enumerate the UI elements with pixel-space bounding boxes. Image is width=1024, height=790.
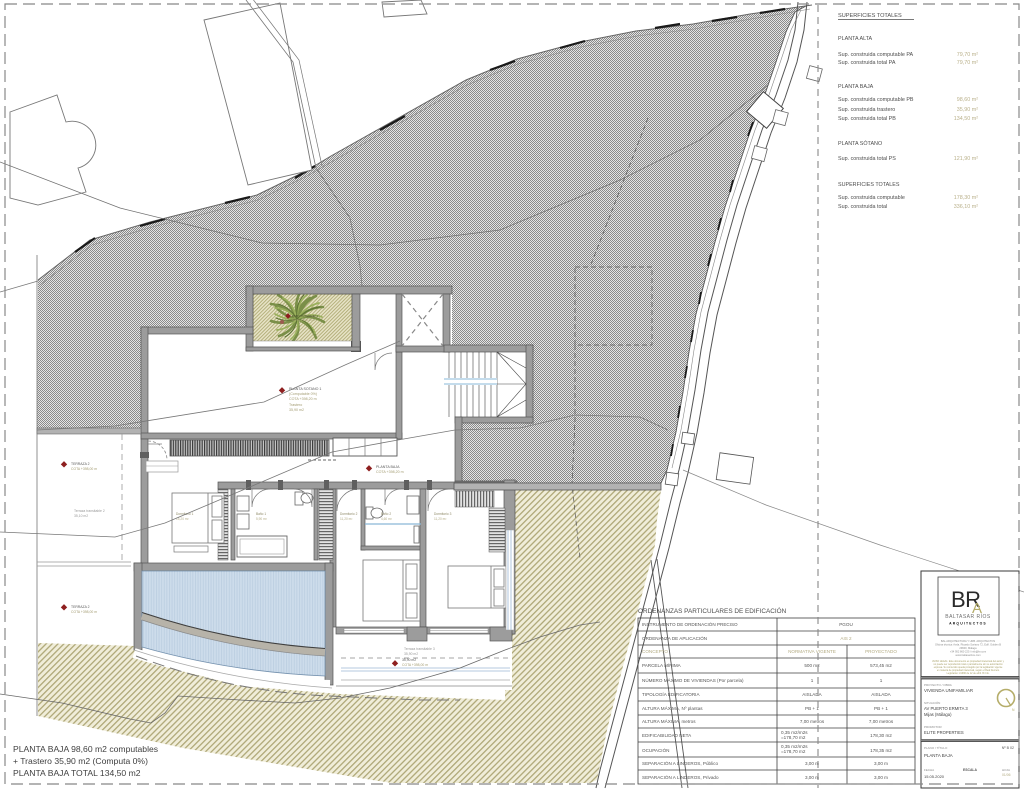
svg-text:Mijas (Málaga): Mijas (Málaga) <box>924 712 952 717</box>
svg-text:Sup. construida total PS: Sup. construida total PS <box>838 156 896 162</box>
svg-text:TERRAZA 2: TERRAZA 2 <box>71 462 90 466</box>
svg-text:35,90 m2: 35,90 m2 <box>404 652 418 656</box>
svg-text:3,00 m: 3,00 m <box>805 761 819 766</box>
svg-text:CONCEPTO: CONCEPTO <box>642 649 668 654</box>
svg-text:3,00 m: 3,00 m <box>874 761 888 766</box>
svg-text:TERRAZA 2: TERRAZA 2 <box>71 605 90 609</box>
svg-text:35,90 m2: 35,90 m2 <box>289 408 304 412</box>
svg-text:7,00 metros: 7,00 metros <box>800 719 825 724</box>
svg-text:Terraza transitable 2: Terraza transitable 2 <box>74 509 105 513</box>
svg-text:AISLADA: AISLADA <box>802 692 822 697</box>
svg-text:PROYECTADO: PROYECTADO <box>865 649 897 654</box>
svg-text:ESCALA: ESCALA <box>963 768 977 772</box>
svg-text:336,10 m²: 336,10 m² <box>954 204 978 210</box>
svg-text:3,00 m: 3,00 m <box>805 775 819 780</box>
svg-text:Terraza transitable 3: Terraza transitable 3 <box>404 647 435 651</box>
svg-text:15.05.2020: 15.05.2020 <box>924 774 945 779</box>
svg-text:98,60 m²: 98,60 m² <box>957 97 978 103</box>
svg-text:35,90 m²: 35,90 m² <box>957 107 978 113</box>
svg-text:11,20 m²: 11,20 m² <box>434 517 446 521</box>
svg-text:TIPOLOGÍA EDIFICATORIA: TIPOLOGÍA EDIFICATORIA <box>642 691 700 697</box>
svg-text:ARQUITECTOS: ARQUITECTOS <box>949 622 987 626</box>
svg-text:SEPARACIÓN A LINDEROS, Privado: SEPARACIÓN A LINDEROS, Privado <box>642 774 719 780</box>
svg-text:1: 1 <box>811 678 814 683</box>
svg-text:+34 952 860 225 / info@br.com: +34 952 860 225 / info@br.com <box>950 650 986 654</box>
svg-text:Baño 2: Baño 2 <box>381 512 391 516</box>
svg-text:COTA +398,00 m: COTA +398,00 m <box>71 610 97 614</box>
svg-text:PLANTA BAJA: PLANTA BAJA <box>924 753 953 758</box>
svg-text:AISLADA: AISLADA <box>871 692 891 697</box>
svg-text:PB + 1: PB + 1 <box>805 706 819 711</box>
svg-text:PLANTA BAJA: PLANTA BAJA <box>376 465 400 469</box>
svg-text:COTA +398,20 m: COTA +398,20 m <box>289 397 317 401</box>
svg-text:Dormitorio 3: Dormitorio 3 <box>434 512 452 516</box>
svg-text:FECHA: FECHA <box>924 768 934 772</box>
svg-text:178,35 m2: 178,35 m2 <box>870 748 892 753</box>
svg-text:SUPERFICIES TOTALES: SUPERFICIES TOTALES <box>838 182 900 188</box>
svg-text:BAL ARQUITECTURA Y URB. ARQUIT: BAL ARQUITECTURA Y URB. ARQUITECTOS <box>941 639 996 643</box>
svg-text:Dormitorio 2: Dormitorio 2 <box>340 512 358 516</box>
svg-text:5,90 m²: 5,90 m² <box>256 517 267 521</box>
svg-text:7,00 metros: 7,00 metros <box>869 719 894 724</box>
svg-text:PLANTA SÓTANO: PLANTA SÓTANO <box>838 140 882 147</box>
svg-text:PLANTA ALTA: PLANTA ALTA <box>838 36 873 42</box>
svg-text:ALTURA MÁXIMA, Nº plantas: ALTURA MÁXIMA, Nº plantas <box>642 705 703 711</box>
svg-text:ORDENANZA DE APLICACIÓN: ORDENANZA DE APLICACIÓN <box>642 635 707 641</box>
svg-text:Sup. construida total: Sup. construida total <box>838 204 887 210</box>
svg-text:573,45 m2: 573,45 m2 <box>870 663 892 668</box>
svg-text:PARCELA MÍNIMA: PARCELA MÍNIMA <box>642 662 682 668</box>
svg-text:www.baltasarrios.com: www.baltasarrios.com <box>955 653 980 657</box>
svg-text:35,10 m2: 35,10 m2 <box>74 514 88 518</box>
svg-text:Sup. construida computable PB: Sup. construida computable PB <box>838 97 914 103</box>
svg-text:BALTASAR RÍOS: BALTASAR RÍOS <box>945 613 991 620</box>
svg-text:+ Trastero 35,90 m2 (Computa 0: + Trastero 35,90 m2 (Computa 0%) <box>13 756 148 766</box>
svg-text:PB + 1: PB + 1 <box>874 706 888 711</box>
svg-text:=178,70 m2: =178,70 m2 <box>781 749 806 754</box>
svg-text:Sup. construida computable: Sup. construida computable <box>838 195 905 201</box>
svg-text:178,30 m2: 178,30 m2 <box>870 733 892 738</box>
svg-text:1: 1 <box>880 678 883 683</box>
svg-text:COTA +398,00 m: COTA +398,00 m <box>402 663 428 667</box>
svg-text:COTA +398,20 m: COTA +398,20 m <box>292 318 316 322</box>
svg-text:COTA +398,00 m: COTA +398,00 m <box>71 467 97 471</box>
svg-text:ALTURA MÁXIMA, metros: ALTURA MÁXIMA, metros <box>642 718 696 724</box>
svg-text:OCUPACIÓN: OCUPACIÓN <box>642 747 669 753</box>
svg-text:3,00 m: 3,00 m <box>874 775 888 780</box>
svg-text:=178,70 m2: =178,70 m2 <box>781 735 806 740</box>
svg-text:Sup. construida trastero: Sup. construida trastero <box>838 107 895 113</box>
svg-text:Baño 1: Baño 1 <box>256 512 266 516</box>
svg-text:Dormitorio 1: Dormitorio 1 <box>176 512 194 516</box>
svg-text:SUPERFICIES TOTALES: SUPERFICIES TOTALES <box>838 13 902 19</box>
svg-text:121,90 m²: 121,90 m² <box>954 156 978 162</box>
svg-text:134,50 m²: 134,50 m² <box>954 116 978 122</box>
svg-text:PLANO / TÍTULO: PLANO / TÍTULO <box>924 746 948 750</box>
svg-text:SEPARACIÓN A LINDEROS, Público: SEPARACIÓN A LINDEROS, Público <box>642 760 718 766</box>
svg-text:HOJA: HOJA <box>1002 768 1010 772</box>
svg-text:INSTRUMENTO DE ORDENACIÓN PREC: INSTRUMENTO DE ORDENACIÓN PRECISO <box>642 621 738 627</box>
svg-text:ORDENANZAS PARTICULARES DE EDI: ORDENANZAS PARTICULARES DE EDIFICACIÓN <box>638 606 787 615</box>
svg-text:Sup. construida computable PA: Sup. construida computable PA <box>838 52 914 58</box>
svg-text:4,60 m²: 4,60 m² <box>381 517 392 521</box>
svg-text:COTA +398,20 m: COTA +398,20 m <box>376 470 404 474</box>
svg-text:PROMOTOR: PROMOTOR <box>924 725 942 729</box>
svg-text:Oficina técnica: Avda. Ricardo: Oficina técnica: Avda. Ricardo Soriano 7… <box>935 643 1001 647</box>
svg-text:AIS 2: AIS 2 <box>840 636 852 641</box>
svg-text:NÚMERO MÁXIMO DE VIVIENDAS (Po: NÚMERO MÁXIMO DE VIVIENDAS (Por parcela) <box>642 677 744 683</box>
svg-text:Nº B 02: Nº B 02 <box>1002 746 1014 750</box>
svg-text:11,20 m²: 11,20 m² <box>340 517 352 521</box>
svg-text:PGOU: PGOU <box>839 622 853 627</box>
svg-text:PLANTA BAJA TOTAL 134,50 m2: PLANTA BAJA TOTAL 134,50 m2 <box>13 768 141 778</box>
svg-text:NORMATIVA VIGENTE: NORMATIVA VIGENTE <box>788 649 836 654</box>
svg-text:29600, Málaga: 29600, Málaga <box>959 646 977 650</box>
svg-text:EDIFICABILIDAD NETA: EDIFICABILIDAD NETA <box>642 733 692 738</box>
svg-text:VIVIENDA UNIFAMILIAR: VIVIENDA UNIFAMILIAR <box>924 688 973 693</box>
svg-text:PLANTA BAJA: PLANTA BAJA <box>838 84 874 90</box>
svg-text:178,30 m²: 178,30 m² <box>954 195 978 201</box>
svg-text:79,70 m²: 79,70 m² <box>957 52 978 58</box>
svg-text:PLANTA SOTANO 1: PLANTA SOTANO 1 <box>289 387 321 391</box>
svg-text:79,70 m²: 79,70 m² <box>957 60 978 66</box>
svg-text:01/06: 01/06 <box>1002 773 1011 777</box>
svg-text:Legislativo 1/1996 de 12 de ab: Legislativo 1/1996 de 12 de abril. B.O.E… <box>947 672 990 675</box>
svg-text:PROYECTO / OBRA: PROYECTO / OBRA <box>924 683 952 687</box>
svg-text:SITUACIÓN: SITUACIÓN <box>924 700 940 705</box>
svg-text:ELITE PROPERTIES: ELITE PROPERTIES <box>924 730 964 735</box>
svg-text:Sup. construida total PB: Sup. construida total PB <box>838 116 896 122</box>
svg-text:Sup. construida total PA: Sup. construida total PA <box>838 60 896 66</box>
svg-text:Trastero: Trastero <box>289 403 302 407</box>
svg-text:AV PUERTO ERMITA 3: AV PUERTO ERMITA 3 <box>924 706 968 711</box>
svg-text:PLANTA BAJA 98,60 m2 computabl: PLANTA BAJA 98,60 m2 computables <box>13 744 158 754</box>
svg-text:35,90 m2: 35,90 m2 <box>402 658 416 662</box>
svg-text:(Computable 0%): (Computable 0%) <box>289 392 317 396</box>
